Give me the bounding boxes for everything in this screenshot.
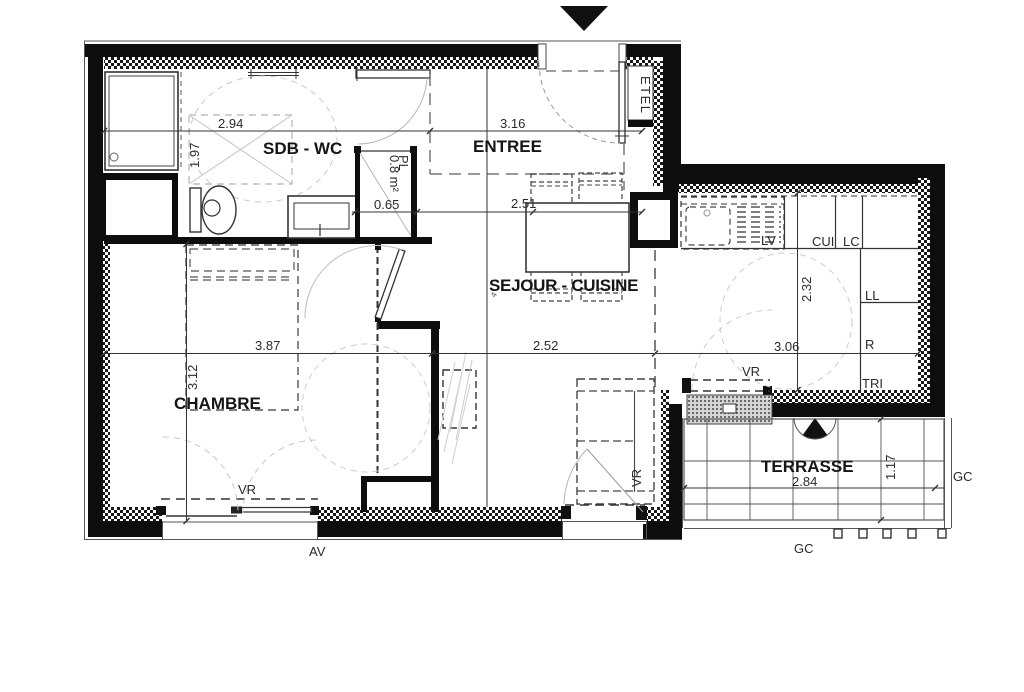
- svg-text:LC: LC: [843, 234, 860, 249]
- svg-text:CHAMBRE: CHAMBRE: [174, 394, 261, 413]
- svg-text:0.8 m²: 0.8 m²: [387, 155, 402, 193]
- svg-text:2.52: 2.52: [533, 338, 558, 353]
- svg-text:3.12: 3.12: [185, 365, 200, 390]
- svg-text:3.87: 3.87: [255, 338, 280, 353]
- svg-text:GC: GC: [794, 541, 814, 556]
- svg-text:CUI: CUI: [812, 234, 834, 249]
- svg-text:3.06: 3.06: [774, 339, 799, 354]
- svg-text:LL: LL: [865, 288, 879, 303]
- svg-text:2.84: 2.84: [792, 474, 817, 489]
- svg-text:ETEL: ETEL: [638, 76, 653, 115]
- svg-text:3.16: 3.16: [500, 116, 525, 131]
- svg-text:1.17: 1.17: [883, 455, 898, 480]
- svg-text:SDB - WC: SDB - WC: [263, 139, 342, 158]
- svg-text:VR: VR: [238, 482, 256, 497]
- svg-text:2.32: 2.32: [799, 277, 814, 302]
- svg-text:R: R: [865, 337, 874, 352]
- svg-text:1.97: 1.97: [187, 143, 202, 168]
- svg-text:AV: AV: [309, 544, 326, 559]
- svg-text:GC: GC: [953, 469, 973, 484]
- svg-text:VR: VR: [629, 469, 644, 487]
- svg-text:VR: VR: [742, 364, 760, 379]
- svg-text:0.65: 0.65: [374, 197, 399, 212]
- svg-text:LV: LV: [761, 233, 776, 248]
- svg-text:TRI: TRI: [862, 376, 883, 391]
- svg-text:ENTREE: ENTREE: [473, 137, 542, 156]
- svg-text:TERRASSE: TERRASSE: [761, 457, 854, 476]
- svg-text:2.94: 2.94: [218, 116, 243, 131]
- svg-text:2.51: 2.51: [511, 196, 536, 211]
- svg-text:SEJOUR - CUISINE: SEJOUR - CUISINE: [489, 276, 638, 295]
